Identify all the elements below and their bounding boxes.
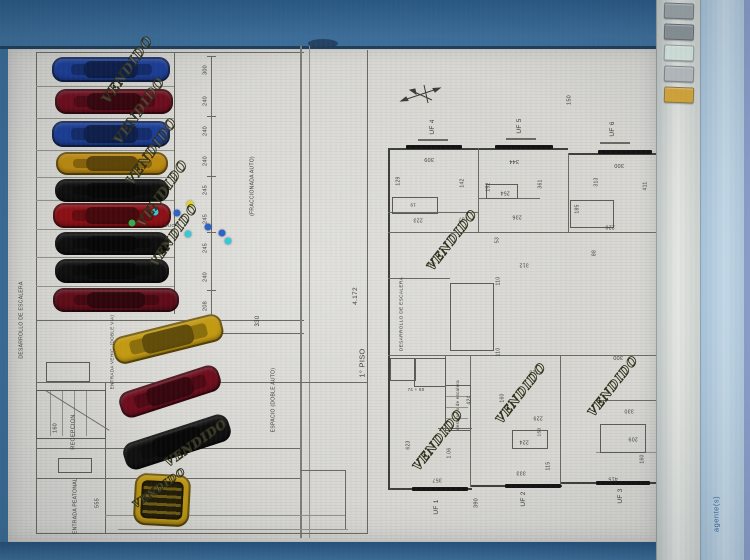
photographed-monitor-screen: 300240240240245245245240208DESARROLLO DE… — [0, 0, 750, 560]
grid-icon[interactable] — [664, 65, 695, 82]
tool-icon[interactable] — [664, 2, 695, 19]
vendido-watermark: VENDIDO — [411, 407, 466, 472]
printer-icon[interactable] — [664, 44, 695, 61]
screen-right-edge — [744, 0, 750, 560]
vendido-watermark: VENDIDO — [425, 207, 480, 272]
watermark-layer: VENDIDOVENDIDOVENDIDOVENDIDOVENDIDOVENDI… — [0, 0, 750, 560]
tool-icon[interactable] — [664, 23, 695, 40]
vendido-watermark: VENDIDO — [494, 360, 549, 425]
side-tab-label[interactable]: agente(s) — [712, 496, 721, 532]
vendido-watermark: VENDIDO — [163, 417, 230, 469]
side-panel-strip[interactable] — [700, 0, 745, 560]
vendido-watermark: VENDIDO — [132, 467, 189, 511]
vendido-watermark: VENDIDO — [586, 353, 641, 418]
toolbar-icons — [661, 3, 697, 108]
folder-icon[interactable] — [664, 86, 695, 103]
